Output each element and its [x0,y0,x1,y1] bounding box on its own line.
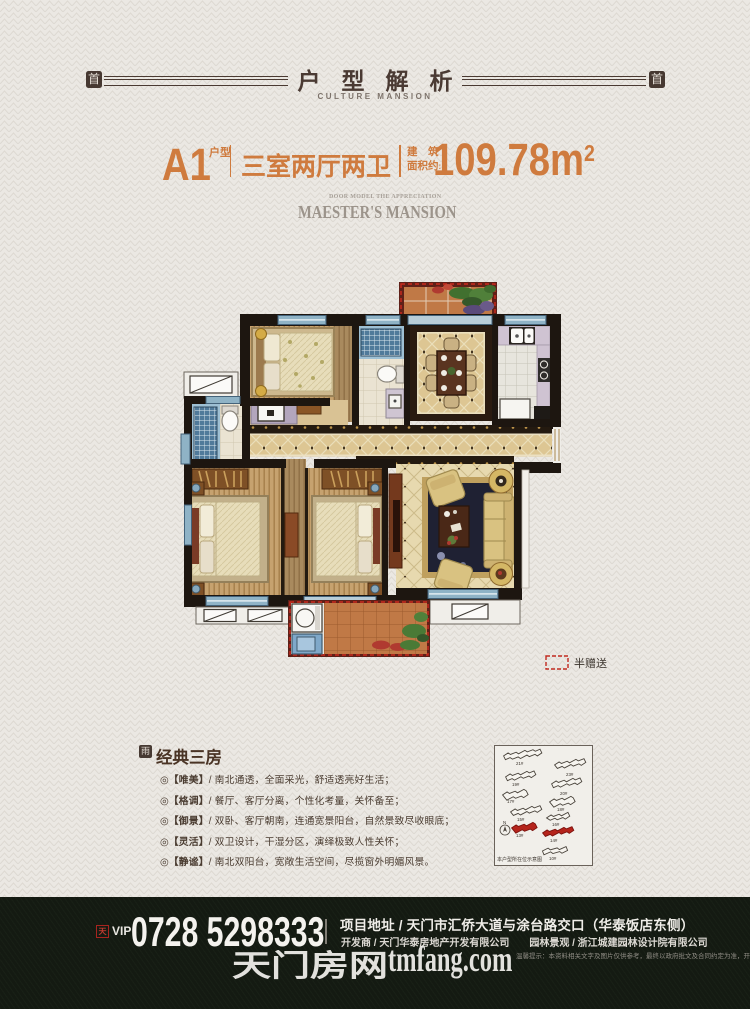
svg-text:16#: 16# [552,822,560,827]
svg-text:半赠送: 半赠送 [574,656,607,670]
svg-text:14#: 14# [550,838,558,843]
svg-text:23#: 23# [566,772,574,777]
svg-text:N: N [503,820,506,825]
svg-text:本户型所在位示意图: 本户型所在位示意图 [497,856,542,863]
svg-text:17#: 17# [507,799,515,804]
svg-text:20#: 20# [560,791,568,796]
svg-text:15#: 15# [517,817,525,822]
svg-text:18#: 18# [557,807,565,812]
svg-text:21#: 21# [516,761,524,766]
svg-text:10#: 10# [549,856,557,861]
svg-text:19#: 19# [512,782,520,787]
svg-text:13#: 13# [516,833,524,838]
